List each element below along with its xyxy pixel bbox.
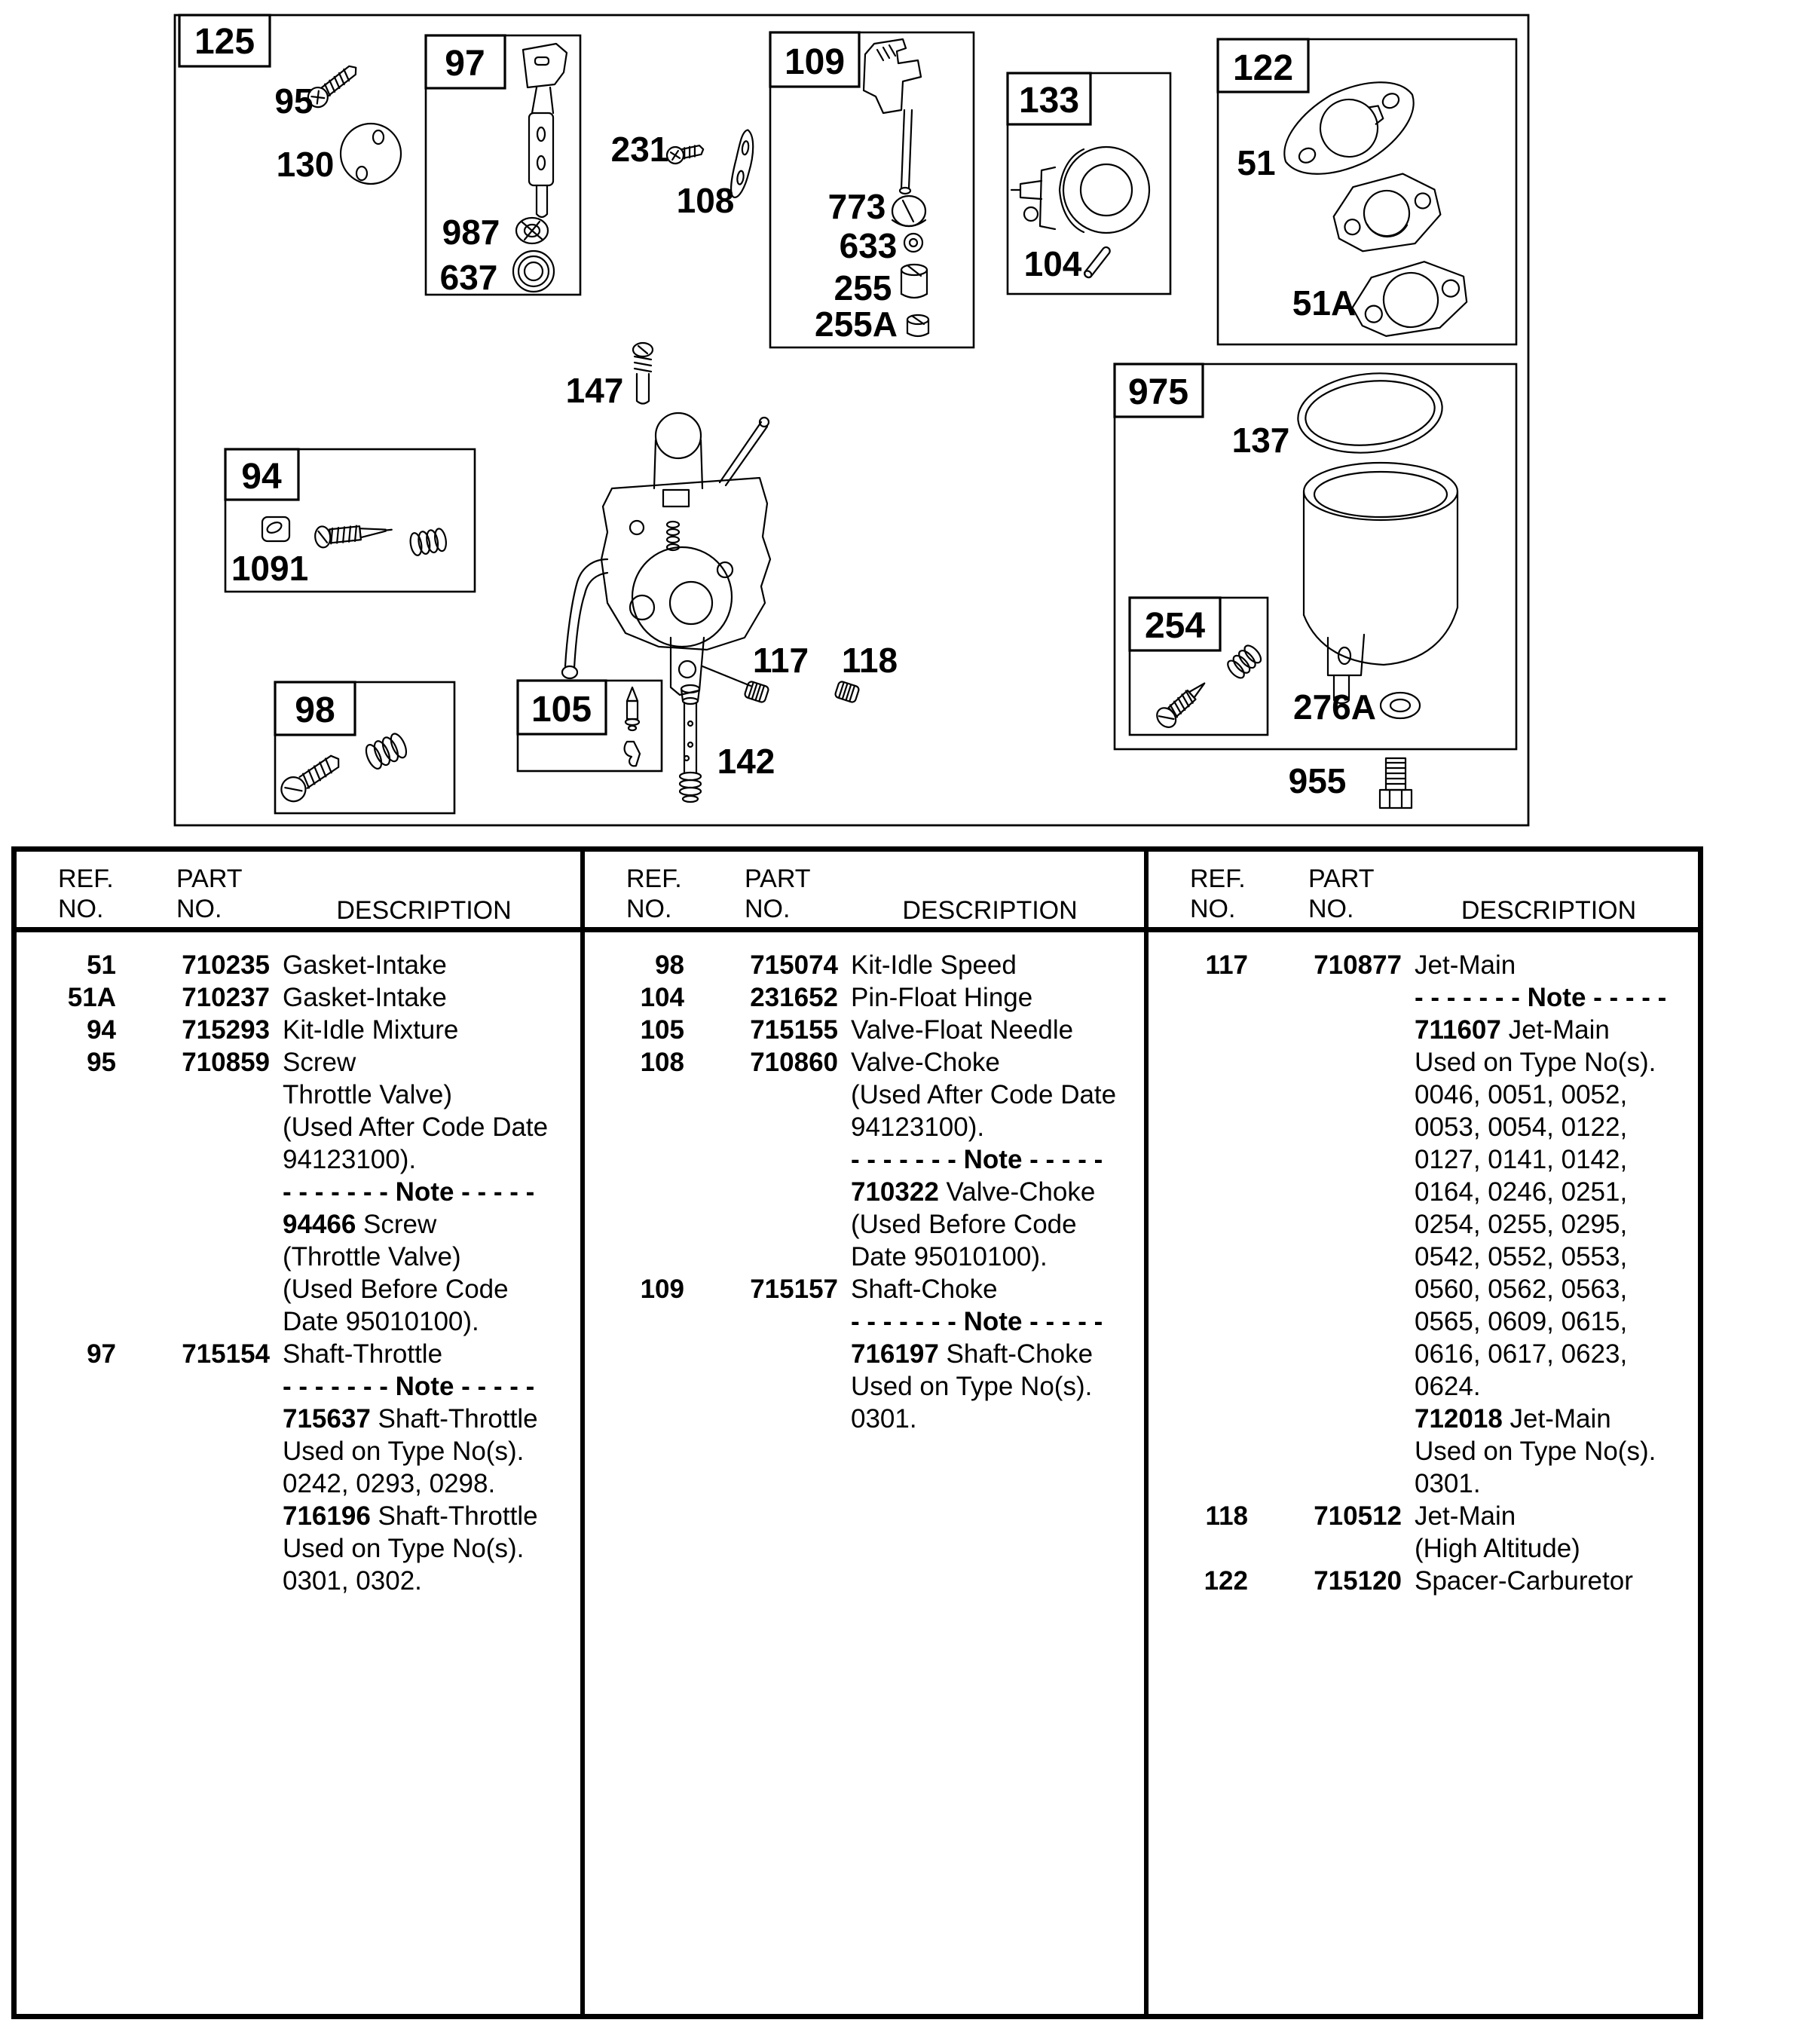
part-no-cell: 231652 [698, 981, 849, 1014]
description-line: 0127, 0141, 0142, [1415, 1143, 1698, 1176]
description-line: Jet-Main [1415, 949, 1698, 981]
table-column-1: REF.NO. PARTNO. DESCRIPTION 51710235Gask… [17, 852, 580, 2014]
description-line: Used on Type No(s). [1415, 1046, 1698, 1079]
callout-1091-label: 1091 [231, 549, 308, 588]
table-row: 51A710237Gasket-Intake [17, 981, 580, 1014]
description-cell: Pin-Float Hinge [849, 981, 1144, 1014]
description-line: 0565, 0609, 0615, [1415, 1305, 1698, 1338]
table-column-3: REF.NO. PARTNO. DESCRIPTION 117710877Jet… [1149, 852, 1698, 2014]
description-line: 94123100). [851, 1111, 1144, 1143]
part-header: PART [1308, 864, 1375, 894]
ref-no-cell: 117 [1149, 949, 1262, 1500]
callout-633-label: 633 [840, 226, 898, 265]
description-cell: Shaft-Throttle- - - - - - - Note - - - -… [280, 1338, 580, 1597]
ref-no-cell: 51A [17, 981, 130, 1014]
description-cell: Spacer-Carburetor [1412, 1565, 1698, 1597]
description-line: Jet-Main [1415, 1500, 1698, 1532]
float-hinge-pin-drawing [1083, 246, 1111, 279]
description-line: Shaft-Choke [851, 1273, 1144, 1305]
part-no-cell: 710512 [1262, 1500, 1412, 1565]
part-no-cell: 715120 [1262, 1565, 1412, 1597]
description-cell: Kit-Idle Mixture [280, 1014, 580, 1046]
callout-51-label: 51 [1237, 143, 1275, 182]
ref-no-cell: 109 [585, 1273, 698, 1435]
description-cell: Gasket-Intake [280, 949, 580, 981]
description-line: - - - - - - - Note - - - - - [1415, 981, 1698, 1014]
callout-255A-label: 255A [815, 304, 898, 344]
part-header: PART [745, 864, 811, 894]
table-row: 109715157Shaft-Choke- - - - - - - Note -… [585, 1273, 1144, 1435]
description-line: (High Altitude) [1415, 1532, 1698, 1565]
ref-no-cell: 118 [1149, 1500, 1262, 1565]
part-no-cell: 715157 [698, 1273, 849, 1435]
ref-no-cell: 122 [1149, 1565, 1262, 1597]
description-line: - - - - - - - Note - - - - - [851, 1305, 1144, 1338]
choke-clamp-drawing [1011, 147, 1149, 233]
exploded-parts-diagram: 125 95 130 97 987 [0, 0, 1820, 844]
callout-276A-label: 276A [1293, 687, 1376, 727]
description-line: Used on Type No(s). [283, 1532, 580, 1565]
description-line: (Used After Code Date [283, 1111, 580, 1143]
description-line: 0254, 0255, 0295, [1415, 1208, 1698, 1241]
ref-no-cell: 105 [585, 1014, 698, 1046]
choke-friction-cup-drawing [892, 196, 925, 226]
description-line: (Used After Code Date [851, 1079, 1144, 1111]
callout-104-label: 104 [1024, 244, 1082, 283]
description-line: Screw [283, 1046, 580, 1079]
part-no-cell: 715155 [698, 1014, 849, 1046]
description-line: Gasket-Intake [283, 949, 580, 981]
callout-98-label: 98 [295, 690, 335, 730]
callout-147-label: 147 [566, 371, 624, 410]
callout-975-label: 975 [1128, 372, 1188, 412]
description-header: DESCRIPTION [845, 895, 1135, 926]
ref-no-cell: 95 [17, 1046, 130, 1338]
description-line: Date 95010100). [851, 1241, 1144, 1273]
description-line: 712018 Jet-Main [1415, 1403, 1698, 1435]
bowl-screw-washer-drawing [1381, 693, 1420, 718]
jet-main-118-drawing [834, 681, 859, 703]
spacer-drawing [1329, 169, 1445, 257]
ref-no-cell: 108 [585, 1046, 698, 1273]
table-row: 97715154Shaft-Throttle- - - - - - - Note… [17, 1338, 580, 1597]
table-row: 108710860Valve-Choke(Used After Code Dat… [585, 1046, 1144, 1273]
description-line: Used on Type No(s). [851, 1370, 1144, 1403]
description-line: 715637 Shaft-Throttle [283, 1403, 580, 1435]
idle-screw-147-drawing [633, 343, 653, 404]
description-line: 94466 Screw [283, 1208, 580, 1241]
description-cell: Kit-Idle Speed [849, 949, 1144, 981]
callout-108-label: 108 [677, 181, 735, 220]
part-no-cell: 715074 [698, 949, 849, 981]
part-no-cell: 715154 [130, 1338, 280, 1597]
description-cell: Valve-Choke(Used After Code Date94123100… [849, 1046, 1144, 1273]
parts-table: REF.NO. PARTNO. DESCRIPTION 51710235Gask… [11, 846, 1703, 2019]
description-line: 711607 Jet-Main [1415, 1014, 1698, 1046]
washer-drawing [904, 234, 922, 252]
callout-109-label: 109 [785, 42, 845, 82]
table-row: 94715293Kit-Idle Mixture [17, 1014, 580, 1046]
description-line: 0301, 0302. [283, 1565, 580, 1597]
callout-122-label: 122 [1233, 48, 1293, 88]
table-header: REF.NO. PARTNO. DESCRIPTION [17, 852, 580, 932]
choke-valve-screw-drawing [665, 141, 705, 165]
description-line: 0301. [1415, 1467, 1698, 1500]
callout-254-label: 254 [1145, 606, 1205, 646]
ref-no-cell: 51 [17, 949, 130, 981]
table-row: 105715155Valve-Float Needle [585, 1014, 1144, 1046]
description-cell: Gasket-Intake [280, 981, 580, 1014]
description-line: Used on Type No(s). [1415, 1435, 1698, 1467]
ref-no-cell: 94 [17, 1014, 130, 1046]
part-no-cell: 710860 [698, 1046, 849, 1273]
ref-header: REF. [1190, 864, 1246, 894]
bowl-gasket-drawing [1294, 366, 1446, 459]
description-line: 0624. [1415, 1370, 1698, 1403]
description-line: Spacer-Carburetor [1415, 1565, 1698, 1597]
description-line: Valve-Float Needle [851, 1014, 1144, 1046]
description-line: Shaft-Throttle [283, 1338, 580, 1370]
description-line: 0164, 0246, 0251, [1415, 1176, 1698, 1208]
description-line: 716196 Shaft-Throttle [283, 1500, 580, 1532]
description-line: 0242, 0293, 0298. [283, 1467, 580, 1500]
description-line: (Used Before Code [283, 1273, 580, 1305]
description-line: Kit-Idle Mixture [283, 1014, 580, 1046]
callout-117-label: 117 [753, 641, 809, 680]
description-cell: Jet-Main(High Altitude) [1412, 1500, 1698, 1565]
callout-51A-label: 51A [1292, 283, 1356, 323]
part-no-cell: 715293 [130, 1014, 280, 1046]
description-line: - - - - - - - Note - - - - - [283, 1176, 580, 1208]
ref-no-cell: 104 [585, 981, 698, 1014]
description-line: 0542, 0552, 0553, [1415, 1241, 1698, 1273]
part-header: PART [176, 864, 243, 894]
part-no-cell: 710237 [130, 981, 280, 1014]
table-header: REF.NO. PARTNO. DESCRIPTION [585, 852, 1144, 932]
description-line: 94123100). [283, 1143, 580, 1176]
description-cell: Shaft-Choke- - - - - - - Note - - - - -7… [849, 1273, 1144, 1435]
table-header: REF.NO. PARTNO. DESCRIPTION [1149, 852, 1698, 932]
callout-231-label: 231 [611, 130, 669, 169]
table-column-2: REF.NO. PARTNO. DESCRIPTION 98715074Kit-… [585, 852, 1144, 2014]
description-line: Pin-Float Hinge [851, 981, 1144, 1014]
idle-speed-kit-drawing [277, 732, 409, 806]
jet-main-117-drawing [744, 681, 769, 703]
throttle-plate-drawing [341, 124, 401, 184]
table-row: 98715074Kit-Idle Speed [585, 949, 1144, 981]
callout-637-label: 637 [440, 258, 498, 297]
callout-125-label: 125 [194, 22, 255, 62]
cup-255A-drawing [907, 315, 928, 336]
jet-leader-line [702, 666, 751, 686]
callout-94-label: 94 [241, 457, 282, 497]
description-line: - - - - - - - Note - - - - - [283, 1370, 580, 1403]
nozzle-tube-drawing [680, 685, 701, 802]
description-line: Used on Type No(s). [283, 1435, 580, 1467]
callout-773-label: 773 [828, 187, 886, 226]
ref-header: REF. [626, 864, 682, 894]
callout-955-label: 955 [1289, 761, 1347, 800]
description-line: - - - - - - - Note - - - - - [851, 1143, 1144, 1176]
description-line: Kit-Idle Speed [851, 949, 1144, 981]
callout-130-label: 130 [277, 145, 335, 184]
table-row: 95710859ScrewThrottle Valve)(Used After … [17, 1046, 580, 1338]
ref-no-cell: 97 [17, 1338, 130, 1597]
throttle-shaft-drawing [523, 44, 567, 217]
callout-133-label: 133 [1019, 81, 1079, 121]
description-header: DESCRIPTION [277, 895, 571, 926]
callout-118-label: 118 [842, 641, 898, 680]
description-line: 710322 Valve-Choke [851, 1176, 1144, 1208]
table-row: 118710512Jet-Main(High Altitude) [1149, 1500, 1698, 1565]
description-line: (Used Before Code [851, 1208, 1144, 1241]
table-row: 122715120Spacer-Carburetor [1149, 1565, 1698, 1597]
callout-97-label: 97 [445, 44, 485, 84]
description-line: (Throttle Valve) [283, 1241, 580, 1273]
callout-95-label: 95 [274, 81, 313, 121]
needle-kit-254-drawing [1153, 643, 1264, 731]
description-cell: Valve-Float Needle [849, 1014, 1144, 1046]
choke-shaft-drawing [864, 39, 921, 194]
description-cell: ScrewThrottle Valve)(Used After Code Dat… [280, 1046, 580, 1338]
callout-987-label: 987 [442, 213, 500, 252]
foam-seal-drawing [516, 218, 548, 243]
description-line: 0301. [851, 1403, 1144, 1435]
fuel-bowl-drawing [1304, 463, 1458, 703]
cup-255-drawing [901, 265, 927, 298]
description-cell: Jet-Main- - - - - - - Note - - - - -7116… [1412, 949, 1698, 1500]
shaft-bearing-drawing [513, 251, 554, 292]
carburetor-body-drawing [562, 413, 770, 695]
description-line: 0560, 0562, 0563, [1415, 1273, 1698, 1305]
part-no-cell: 710235 [130, 949, 280, 981]
callout-137-label: 137 [1232, 421, 1290, 460]
callout-105-label: 105 [531, 690, 592, 730]
float-needle-drawing [625, 687, 640, 766]
table-row: 117710877Jet-Main- - - - - - - Note - - … [1149, 949, 1698, 1500]
description-line: Valve-Choke [851, 1046, 1144, 1079]
description-header: DESCRIPTION [1409, 895, 1689, 926]
part-no-cell: 710877 [1262, 949, 1412, 1500]
gasket-51A-drawing [1346, 254, 1473, 344]
table-row: 51710235Gasket-Intake [17, 949, 580, 981]
description-line: 0616, 0617, 0623, [1415, 1338, 1698, 1370]
ref-header: REF. [58, 864, 114, 894]
description-line: 716197 Shaft-Choke [851, 1338, 1144, 1370]
parts-catalog-page: 125 95 130 97 987 [0, 0, 1820, 2035]
table-row: 104231652Pin-Float Hinge [585, 981, 1144, 1014]
callout-142-label: 142 [717, 742, 775, 781]
description-line: Gasket-Intake [283, 981, 580, 1014]
description-line: Throttle Valve) [283, 1079, 580, 1111]
callout-255-label: 255 [834, 268, 892, 308]
description-line: 0046, 0051, 0052, [1415, 1079, 1698, 1111]
description-line: 0053, 0054, 0122, [1415, 1111, 1698, 1143]
description-line: Date 95010100). [283, 1305, 580, 1338]
bowl-screw-drawing [1380, 758, 1412, 808]
part-no-cell: 710859 [130, 1046, 280, 1338]
ref-no-cell: 98 [585, 949, 698, 981]
